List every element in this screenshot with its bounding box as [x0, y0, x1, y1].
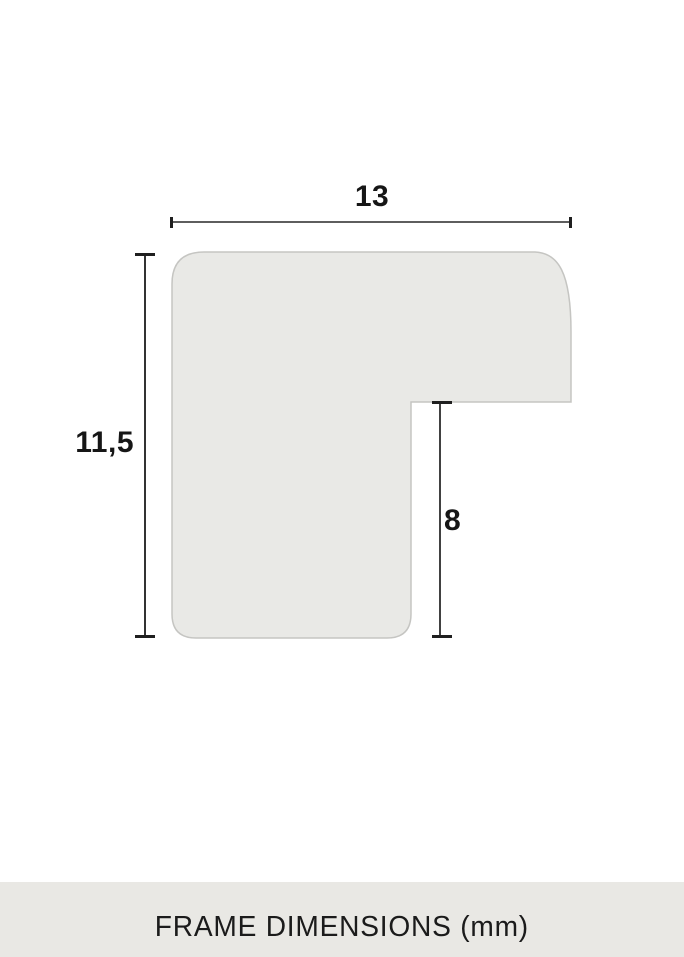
dimension-line-rabbet-depth	[439, 403, 441, 637]
dimension-line-height	[144, 255, 146, 637]
dimension-tick-width-right	[569, 217, 572, 228]
dimension-tick-width-left	[170, 217, 173, 228]
footer-bar: FRAME DIMENSIONS (mm)	[0, 882, 684, 957]
dimension-label-width: 13	[332, 180, 412, 214]
dimension-tick-height-bottom	[135, 635, 155, 638]
frame-profile-path	[172, 252, 571, 638]
frame-dimensions-diagram: 13 11,5 8 FRAME DIMENSIONS (mm)	[0, 0, 684, 957]
footer-caption: FRAME DIMENSIONS (mm)	[155, 911, 529, 944]
dimension-tick-height-top	[135, 253, 155, 256]
dimension-tick-rabbet-top	[432, 401, 452, 404]
dimension-label-rabbet-depth: 8	[444, 504, 484, 538]
dimension-label-height: 11,5	[38, 426, 134, 460]
dimension-tick-rabbet-bottom	[432, 635, 452, 638]
frame-profile-shape	[0, 0, 684, 957]
dimension-line-width	[172, 221, 571, 223]
